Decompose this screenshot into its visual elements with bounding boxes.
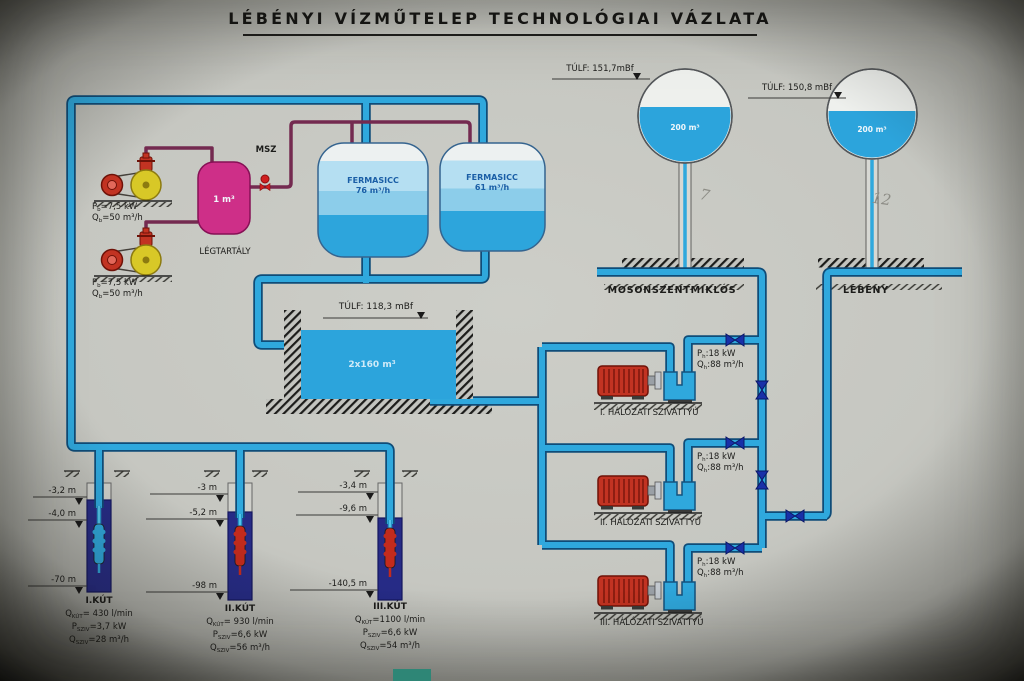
tower-2-name: LÉBÉNY: [843, 285, 889, 296]
well-3-depth-0: -3,4 m: [339, 481, 367, 491]
well-3-power: PSZIV=6,6 kW: [363, 628, 417, 640]
well-2-capacity: QSZIV=56 m³/h: [210, 643, 270, 655]
pump-1-power: Ph:18 kW: [697, 349, 735, 361]
well-3-flow: QKÚT=1100 l/min: [355, 615, 425, 627]
photo-edge-object: [393, 669, 431, 681]
well-1-name: I.KÚT: [85, 596, 112, 606]
air-tank-label: LÉGTARTÁLY: [199, 247, 250, 257]
page-title: LÉBÉNYI VÍZMŰTELEP TECHNOLÓGIAI VÁZLATA: [228, 9, 772, 28]
reservoir-volume: 2x160 m³: [348, 360, 395, 370]
compressor-2-flow: Qb=50 m³/h: [92, 289, 143, 301]
msz-valve-label: MSZ: [256, 145, 277, 155]
well-1-depth-2: -70 m: [51, 575, 76, 585]
tower-2-overflow-label: TÚLF: 150,8 mBf: [762, 83, 832, 93]
tower-2-volume: 200 m³: [857, 125, 886, 134]
pump-2-flow: Qh:88 m³/h: [697, 463, 744, 475]
well-3-capacity: QSZIV=54 m³/h: [360, 641, 420, 653]
well-2-depth-0: -3 m: [198, 483, 217, 493]
pump-3-power: Ph:18 kW: [697, 557, 735, 569]
schematic-photo: LÉBÉNYI VÍZMŰTELEP TECHNOLÓGIAI VÁZLATA …: [0, 0, 1024, 681]
well-1-power: PSZIV=3,7 kW: [72, 622, 126, 634]
pump-1-label: I. HÁLÓZATI SZIVATTYÚ: [600, 408, 698, 418]
well-1-depth-0: -3,2 m: [48, 486, 76, 496]
tower-1-overflow-label: TÚLF: 151,7mBf: [566, 64, 633, 74]
filter-2-capacity: 61 m³/h: [475, 183, 509, 192]
well-2-depth-1: -5,2 m: [189, 508, 217, 518]
filter-1-capacity: 76 m³/h: [356, 186, 390, 195]
filter-1-name: FERMASICC: [347, 176, 399, 185]
well-3-depth-2: -140,5 m: [329, 579, 367, 589]
pump-2-power: Ph:18 kW: [697, 452, 735, 464]
well-1-depth-1: -4,0 m: [48, 509, 76, 519]
pump-3-flow: Qh:88 m³/h: [697, 568, 744, 580]
pump-3-label: III. HÁLÓZATI SZIVATTYÚ: [600, 618, 703, 628]
pencil-note-1: 7: [698, 185, 711, 205]
compressor-1-flow: Qb=50 m³/h: [92, 213, 143, 225]
well-2-depth-2: -98 m: [192, 581, 217, 591]
well-2-name: II.KÚT: [225, 604, 255, 614]
well-2-power: PSZIV=6,6 kW: [213, 630, 267, 642]
well-1-flow: QKÚT= 430 l/min: [65, 609, 133, 621]
pump-1-flow: Qh:88 m³/h: [697, 360, 744, 372]
filter-2-name: FERMASICC: [466, 173, 518, 182]
compressor-2-power: Pb=7,5 kW: [92, 278, 137, 290]
well-3-name: III.KÚT: [373, 602, 407, 612]
tower-1-volume: 200 m³: [670, 123, 699, 132]
reservoir-overflow-label: TÚLF: 118,3 mBf: [339, 302, 413, 312]
tower-1-name: MOSONSZENTMIKLÓS: [608, 285, 737, 296]
pump-2-label: II. HÁLÓZATI SZIVATTYÚ: [600, 518, 701, 528]
well-3-depth-1: -9,6 m: [339, 504, 367, 514]
pencil-note-2: 12: [871, 189, 892, 209]
well-2-flow: QKÚT= 930 l/min: [206, 617, 274, 629]
well-1-capacity: QSZIV=28 m³/h: [69, 635, 129, 647]
air-tank-volume: 1 m³: [213, 195, 234, 205]
compressor-1-power: Pb=7,5 kW: [92, 202, 137, 214]
